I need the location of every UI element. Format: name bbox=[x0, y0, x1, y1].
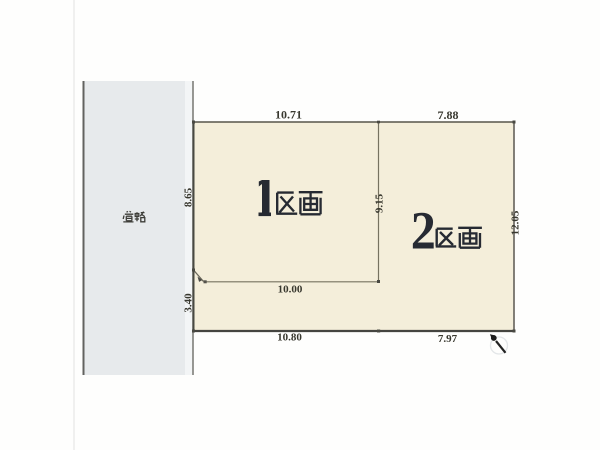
svg-text:12.05: 12.05 bbox=[510, 210, 522, 235]
svg-text:8.65: 8.65 bbox=[183, 187, 195, 207]
svg-text:7.97: 7.97 bbox=[438, 333, 458, 345]
svg-text:10.71: 10.71 bbox=[275, 108, 302, 122]
svg-text:10.80: 10.80 bbox=[277, 332, 302, 344]
svg-text:2: 2 bbox=[411, 202, 436, 261]
svg-text:9.15: 9.15 bbox=[374, 193, 386, 213]
svg-text:10.00: 10.00 bbox=[278, 284, 303, 296]
svg-text:7.88: 7.88 bbox=[438, 108, 459, 122]
svg-text:3.40: 3.40 bbox=[183, 293, 195, 313]
